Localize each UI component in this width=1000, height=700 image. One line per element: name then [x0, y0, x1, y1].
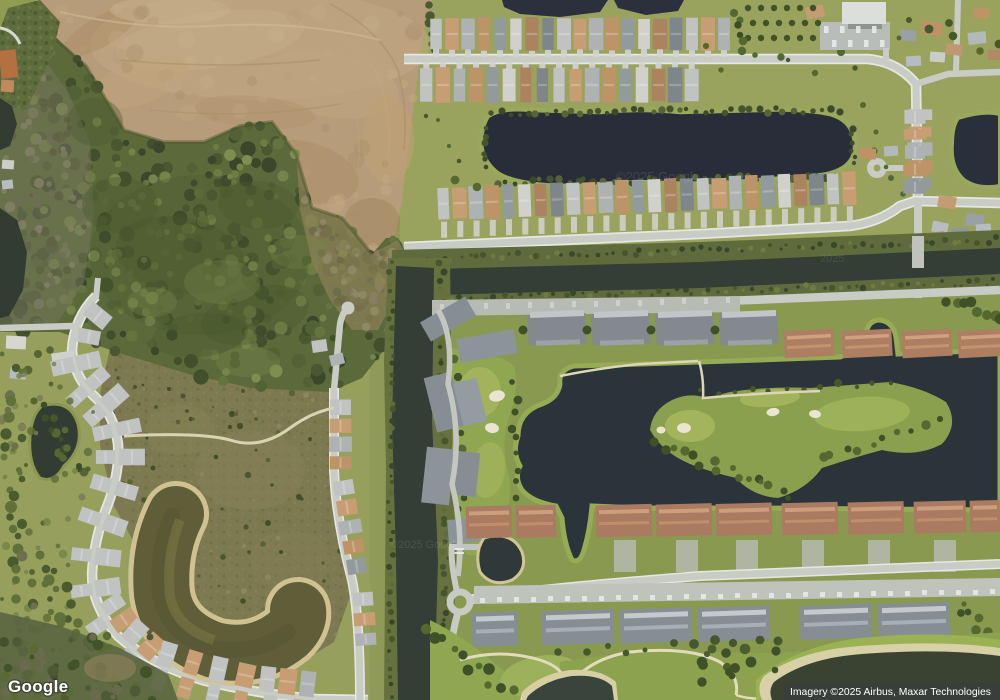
svg-text:Google: Google	[8, 677, 68, 696]
svg-text:Imagery ©2025 Airbus, Maxar Te: Imagery ©2025 Airbus, Maxar Technologies	[790, 687, 991, 698]
svg-text:©2025 Google: ©2025 Google	[390, 539, 461, 551]
svg-text:2025: 2025	[820, 253, 844, 265]
svg-text:©2025 Google: ©2025 Google	[616, 169, 700, 184]
